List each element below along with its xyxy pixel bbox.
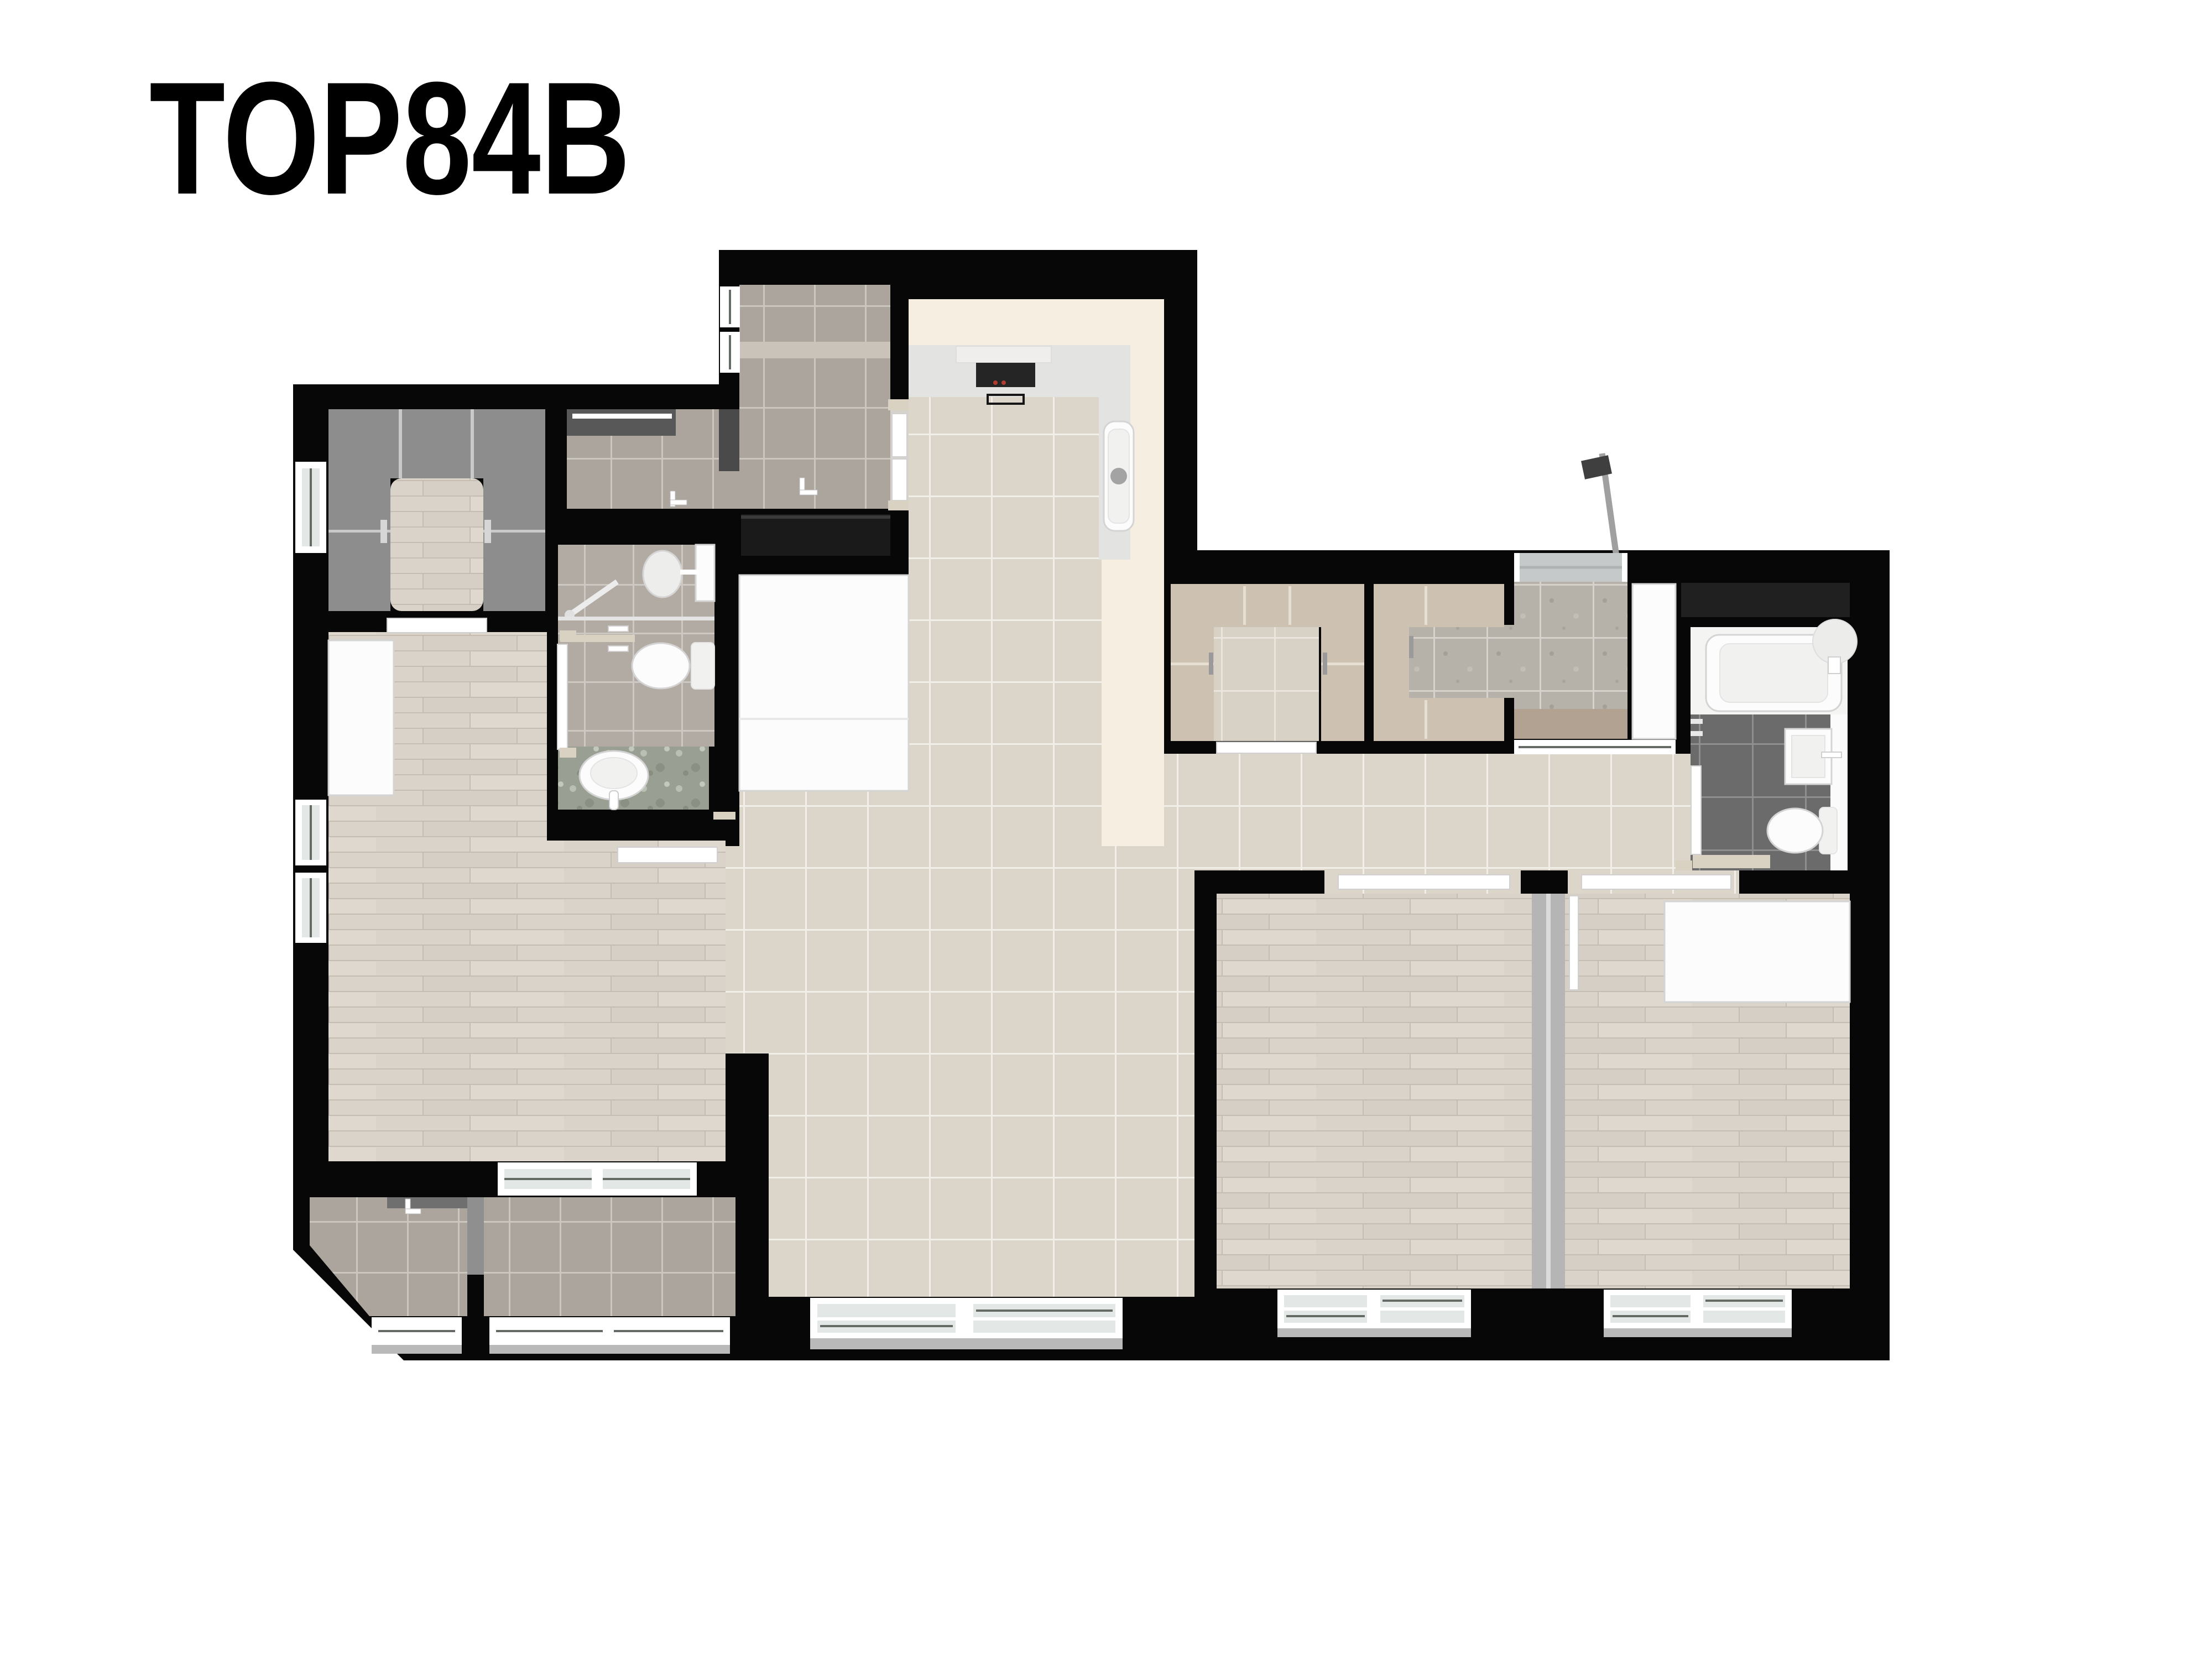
window-sill — [489, 1345, 730, 1354]
wardrobe-left — [328, 478, 390, 611]
foyer-strip-floor — [1130, 299, 1164, 560]
door-jamb — [888, 399, 909, 410]
bathtub-inner — [1720, 644, 1828, 702]
wardrobe-top — [328, 409, 545, 478]
bedroom-closet — [328, 640, 394, 795]
window-balcony-right — [489, 1317, 730, 1345]
kitchen-floor — [909, 397, 1099, 560]
wardrobe-handle — [380, 520, 387, 543]
toilet2-bowl — [1767, 808, 1823, 853]
door-handle — [608, 626, 628, 632]
laundry-counter — [567, 409, 676, 436]
window-living — [810, 1298, 1123, 1338]
door-jamb — [560, 748, 576, 758]
right-hallway-floor — [1194, 754, 1691, 870]
door-handle — [608, 646, 628, 651]
kitchen-floor-2 — [909, 560, 1102, 611]
door-jamb — [713, 812, 735, 820]
plan-title: TOP84B — [149, 49, 630, 228]
window-dressing — [295, 462, 326, 553]
sink-drain — [1110, 468, 1127, 484]
hall-floor-2 — [1164, 754, 1194, 846]
door-jamb — [1676, 860, 1692, 870]
bath2-mat — [1693, 855, 1770, 868]
wardrobe-right — [483, 478, 545, 611]
foyer-strip-floor-2 — [1102, 560, 1164, 846]
bath1-towel-bar — [680, 570, 699, 575]
utility-balcony-mat — [1514, 709, 1627, 739]
window-bedroom-left-2 — [295, 873, 326, 943]
pantry-divider — [1171, 662, 1214, 665]
pantry-divider — [1321, 662, 1364, 665]
pantry-handle — [1209, 653, 1213, 675]
bath2-corner-faucet — [1828, 657, 1840, 674]
pantry-divider — [1288, 586, 1291, 625]
entry-foyer-floor — [909, 299, 1164, 345]
cabinet-highlight — [741, 515, 890, 519]
door-jamb — [888, 500, 909, 510]
bath1-stool — [643, 551, 682, 597]
dressing-room-door — [387, 618, 487, 633]
window-bedroom1 — [1604, 1290, 1792, 1328]
window-bedroom-balcony — [498, 1162, 697, 1196]
laundry-pass-floor — [719, 471, 739, 509]
bath1-partition — [558, 617, 714, 620]
pantry-divider — [1243, 586, 1246, 625]
window-bedroom2 — [1277, 1290, 1471, 1328]
floor-plan-page: TOP84B — [0, 0, 2212, 1659]
wardrobe-divider — [483, 530, 545, 533]
window-laundry-band — [1514, 740, 1676, 754]
washbasin1-faucet — [609, 791, 618, 810]
bedroom1-desk — [1665, 901, 1850, 1002]
window-balcony-top — [1514, 553, 1627, 582]
window-sill — [1277, 1328, 1471, 1337]
pantry-handle — [1323, 653, 1327, 675]
toilet1-bowl — [632, 643, 690, 688]
bedroom2-floor — [1217, 894, 1532, 1288]
balcony-divider — [467, 1197, 484, 1275]
window-bedroom-left-1 — [295, 800, 326, 865]
hall-cabinet-seam — [739, 718, 909, 720]
hall-floor — [739, 791, 909, 846]
washbasin2-faucet — [1822, 752, 1841, 758]
door-jamb — [560, 630, 576, 640]
pantry-divider — [1425, 700, 1427, 739]
shower-bracket — [1691, 731, 1703, 736]
wardrobe-handle — [484, 520, 491, 543]
washbasin2-inner — [1792, 735, 1825, 778]
kitchen-tall-cabinet — [741, 514, 890, 556]
toilet1-tank — [691, 643, 714, 689]
window-sill — [810, 1338, 1123, 1349]
living-room-floor — [769, 846, 1194, 1297]
pantry1-floor — [1214, 627, 1319, 741]
window-balcony-left — [372, 1317, 462, 1345]
wardrobe-divider — [471, 409, 474, 478]
bedroom-divider-line — [1546, 894, 1551, 1288]
master-door-niche-floor — [726, 846, 769, 1053]
laundry-rail — [572, 414, 672, 419]
bedroom1-door — [1582, 875, 1731, 889]
pantry1-door — [1217, 742, 1316, 753]
bath1-door — [557, 644, 567, 749]
burner-indicator — [993, 380, 998, 385]
utility-sliding-door-2 — [892, 459, 907, 500]
balcony-cabinet — [1632, 584, 1676, 739]
dressing-room-floor — [390, 478, 483, 611]
wardrobe-divider — [399, 409, 402, 478]
master-bedroom-door — [618, 847, 717, 863]
bath2-door — [1691, 766, 1701, 854]
master-bedroom-floor — [328, 841, 726, 1161]
balcony-drain — [387, 1197, 467, 1208]
window-sill — [1604, 1328, 1792, 1337]
utility-room-floor — [739, 285, 890, 509]
pantry-handle — [1409, 636, 1413, 658]
washbasin1-inner — [591, 758, 637, 789]
pantry-divider — [1425, 586, 1427, 625]
laundry-partition — [719, 409, 739, 471]
utility-sliding-door-1 — [892, 414, 907, 457]
utility-shelf — [739, 342, 890, 358]
balcony-right-floor — [484, 1197, 735, 1316]
floor-plan-image: TOP84B — [0, 0, 2212, 1659]
burner-indicator — [1001, 380, 1006, 385]
dining-floor — [909, 611, 1102, 846]
shower-bracket — [1691, 719, 1703, 724]
hall-cabinet — [739, 575, 909, 791]
pantry2-floor — [1409, 625, 1514, 698]
window-sill — [372, 1345, 462, 1354]
bedroom2-door — [1338, 875, 1510, 889]
range-hood — [956, 346, 1051, 363]
bedroom1-door-leaf — [1569, 896, 1578, 990]
pantry2-cabinet-bottom — [1374, 698, 1504, 741]
bath2-storage-box — [1681, 583, 1850, 617]
